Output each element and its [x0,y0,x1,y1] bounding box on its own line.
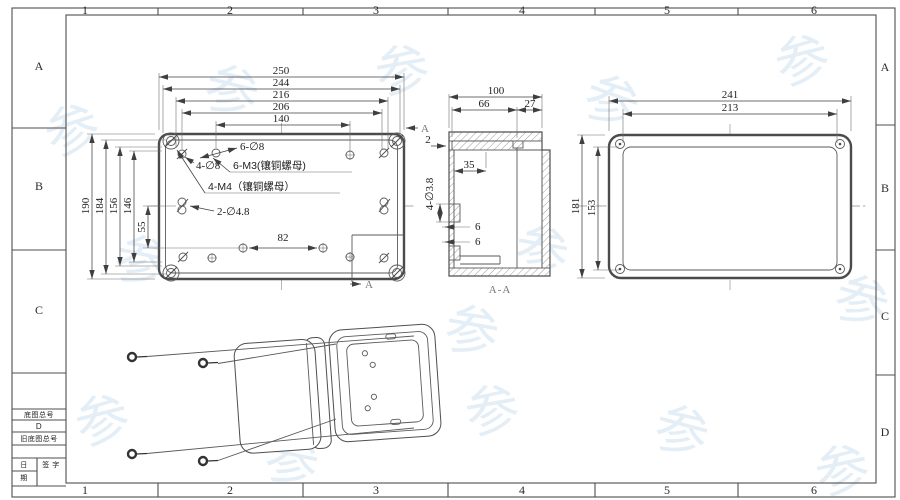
left-boss-lower-section [449,246,460,260]
zone-labels-left: A B C [35,59,44,317]
iso-lid [233,337,332,454]
zone-col-label: 1 [82,3,88,17]
zone-col-label: 3 [373,3,379,17]
zone-row-label: A [35,59,44,73]
drawing-canvas: 参 参 参 参 参 参 参 参 参 参 参 参 参 参 参 参 [0,0,900,500]
zone-row-label: D [881,425,890,439]
lid-lip-section [452,141,517,150]
dim-244: 244 [273,77,290,89]
dim-213: 213 [722,102,739,114]
watermark-glyph: 参 [576,65,647,140]
zone-col-label: 5 [664,3,670,17]
zone-labels-bottom: 1 2 3 4 5 6 [82,483,817,497]
back-view-outline [609,135,851,278]
title-block-date-char2: 期 [20,474,28,482]
bottom-wall-section [449,268,550,276]
dim-6-lower: 6 [475,236,481,248]
note-6-d8: 6-∅8 [240,141,265,153]
dim-181: 181 [570,198,582,215]
dim-156: 156 [108,197,120,214]
dim-2: 2 [425,134,431,146]
zone-ticks-top [158,8,738,15]
watermark-glyph: 参 [461,377,525,445]
watermark-glyph: 参 [38,94,108,168]
zone-col-label: 2 [227,483,233,497]
zone-col-label: 2 [227,3,233,17]
title-block-base-drawing-no: 底图总号 [24,410,54,419]
dim-190: 190 [80,197,92,214]
zone-ticks-bottom [158,483,738,497]
watermark-glyph: 参 [371,37,435,105]
watermark-glyph: 参 [440,298,504,366]
zone-row-label: C [881,309,889,323]
watermark-glyph: 参 [648,396,716,468]
dim-153: 153 [586,199,598,216]
dim-55: 55 [136,221,148,233]
zone-col-label: 5 [664,483,670,497]
dim-66: 66 [479,98,491,110]
left-boss-upper-section [449,204,460,222]
front-view-outline [159,134,404,279]
note-4-m4: 4-M4（镶铜螺母） [208,180,295,193]
zone-col-label: 1 [82,483,88,497]
note-2-d48: 2-∅4.8 [217,206,250,218]
title-block-signature: 签 字 [42,460,59,469]
watermark-glyph: 参 [198,57,265,128]
section-marker-a-bottom: A [365,279,373,291]
dim-140: 140 [273,113,290,125]
zone-row-label: B [881,181,889,195]
isometric-view [128,323,442,465]
title-block-old-base-drawing-no: 旧底图总号 [20,434,58,443]
dim-241: 241 [722,89,739,101]
dim-250: 250 [273,65,290,77]
lid-plate-section [449,132,542,141]
watermark-glyph: 参 [810,437,875,500]
zone-col-label: 4 [519,3,525,17]
title-block-d: D [36,422,42,431]
zone-row-label: A [881,60,890,74]
section-label: A-A [489,284,512,296]
dim-6-upper: 6 [475,221,481,233]
dim-216: 216 [273,89,290,101]
dim-82: 82 [278,232,289,244]
zone-col-label: 6 [811,3,817,17]
dim-184: 184 [94,197,106,214]
dim-206: 206 [273,101,290,113]
zone-col-label: 4 [519,483,525,497]
title-block-date-char1: 日 [20,461,28,469]
zone-col-label: 3 [373,483,379,497]
drawing-sheet: 参 参 参 参 参 参 参 参 参 参 参 参 参 参 参 参 [0,0,900,500]
zone-row-label: B [35,179,43,193]
right-wall-section [542,150,550,272]
lid-step-section [513,141,523,148]
zone-row-label: C [35,303,43,317]
dim-27: 27 [525,98,537,110]
note-6-m3: 6-M3(镶铜螺母) [233,159,306,172]
note-4-d38: 4-∅3.8 [424,177,436,210]
watermark-glyph: 参 [769,26,836,97]
watermark-glyph: 参 [69,386,136,457]
zone-col-label: 6 [811,483,817,497]
dim-35: 35 [464,159,476,171]
dim-100: 100 [488,85,505,97]
dim-146: 146 [122,197,134,214]
title-block: 底图总号 D 旧底图总号 日 期 签 字 [12,409,66,486]
